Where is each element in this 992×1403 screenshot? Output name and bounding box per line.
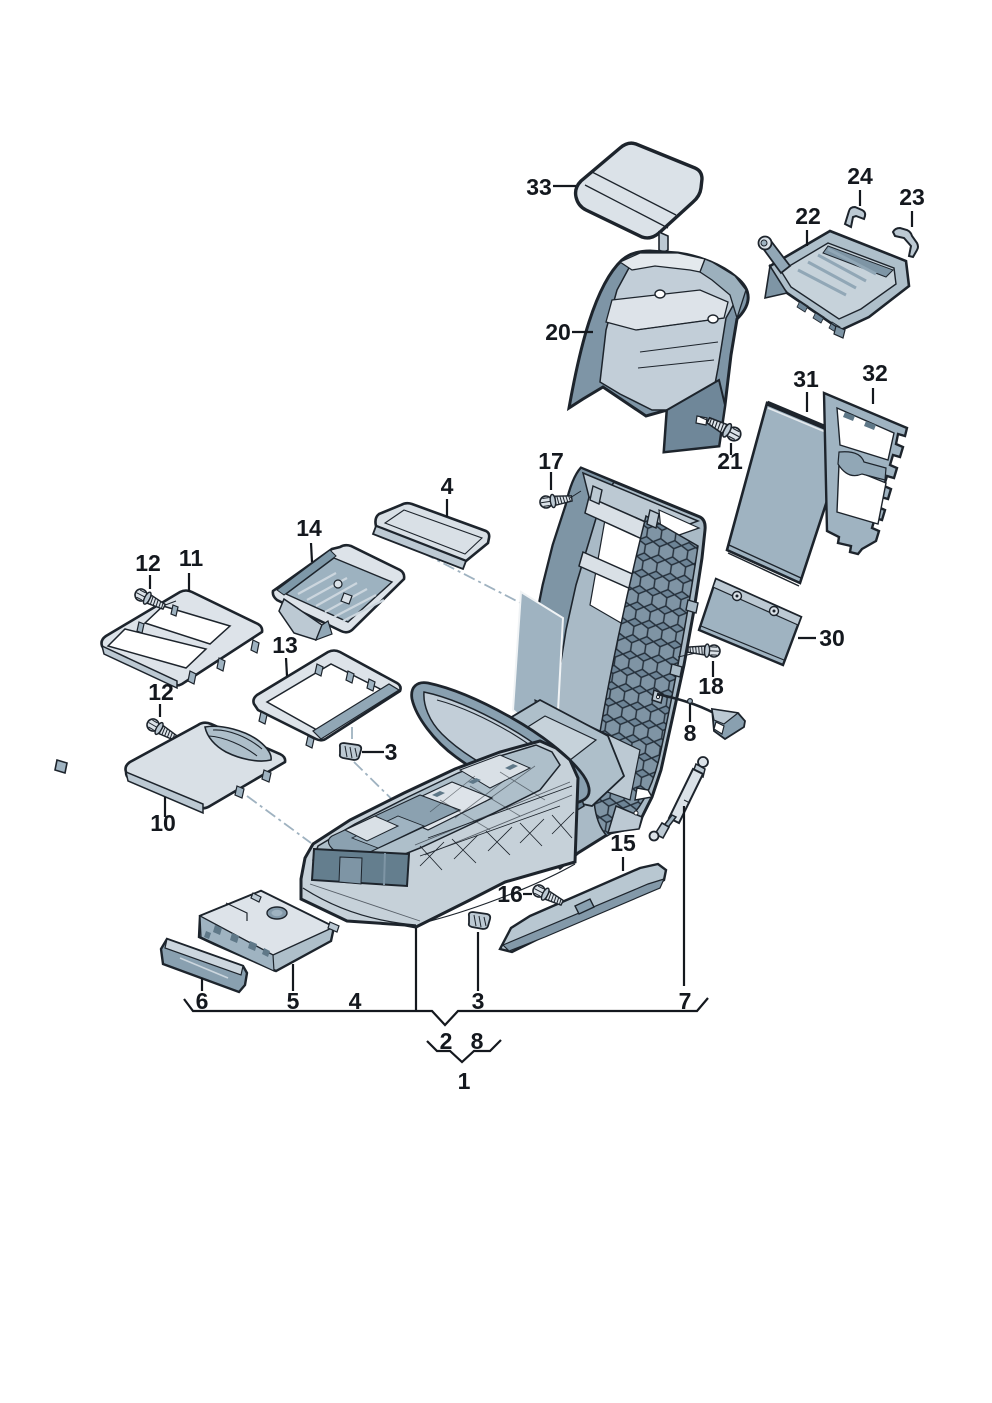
svg-text:13: 13 bbox=[272, 632, 298, 658]
svg-text:4: 4 bbox=[441, 473, 454, 499]
svg-text:11: 11 bbox=[179, 545, 204, 571]
svg-text:14: 14 bbox=[296, 515, 322, 541]
svg-text:20: 20 bbox=[545, 319, 571, 345]
svg-text:23: 23 bbox=[899, 184, 925, 210]
svg-text:10: 10 bbox=[150, 810, 176, 836]
svg-text:15: 15 bbox=[610, 830, 636, 856]
svg-text:32: 32 bbox=[862, 360, 888, 386]
svg-text:8: 8 bbox=[471, 1028, 484, 1054]
svg-text:17: 17 bbox=[538, 448, 564, 474]
svg-text:31: 31 bbox=[793, 366, 819, 392]
svg-text:18: 18 bbox=[698, 673, 724, 699]
svg-text:24: 24 bbox=[847, 163, 873, 189]
svg-text:8: 8 bbox=[684, 720, 697, 746]
svg-text:30: 30 bbox=[819, 625, 845, 651]
svg-text:12: 12 bbox=[148, 679, 174, 705]
svg-text:2: 2 bbox=[440, 1028, 453, 1054]
svg-text:16: 16 bbox=[497, 881, 523, 907]
svg-text:22: 22 bbox=[795, 203, 821, 229]
svg-text:12: 12 bbox=[135, 550, 161, 576]
svg-text:33: 33 bbox=[526, 174, 552, 200]
svg-text:1: 1 bbox=[458, 1068, 471, 1094]
svg-text:3: 3 bbox=[385, 739, 398, 765]
